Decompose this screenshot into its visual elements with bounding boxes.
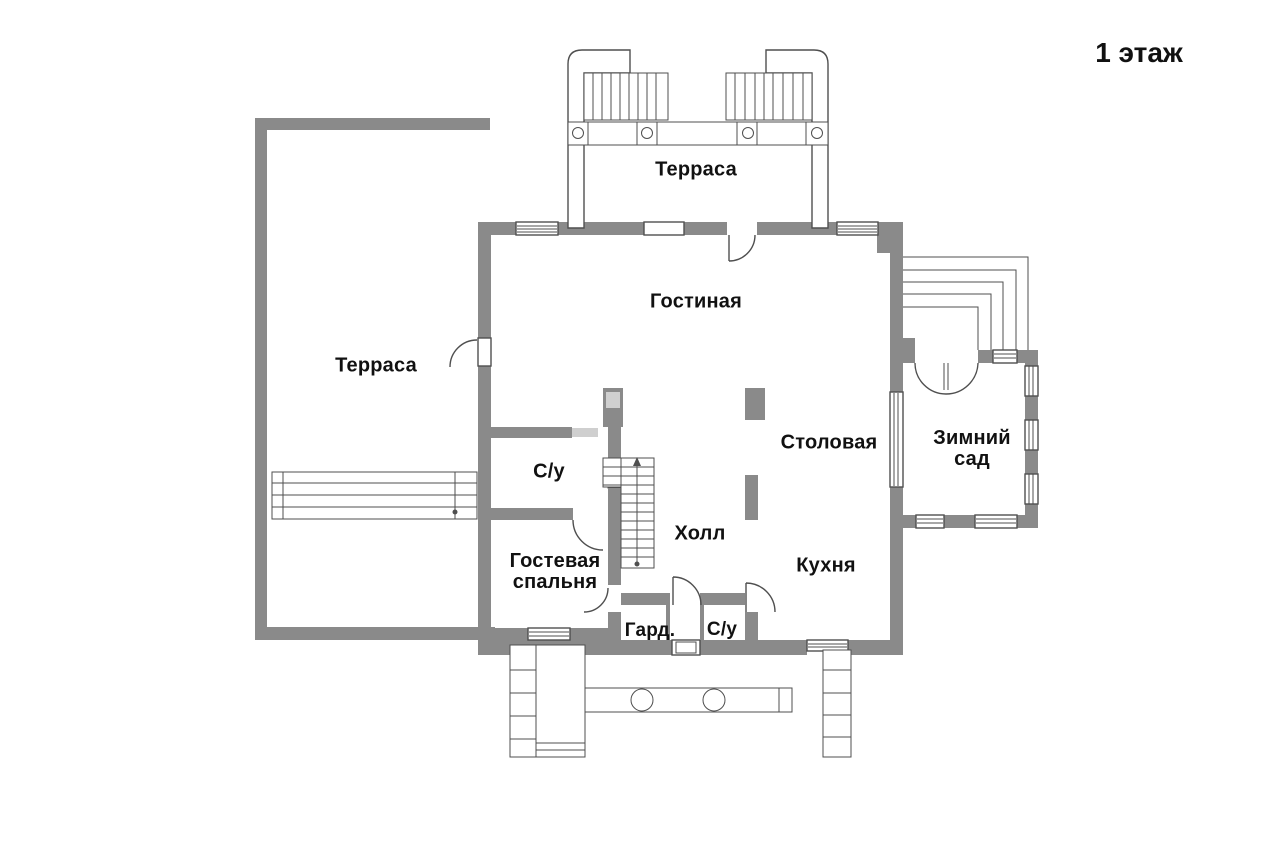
terrace-top-structure (568, 50, 828, 228)
terrace-top-stair-left (584, 73, 668, 120)
room-label-guest-bedroom: Гостевая спальня (510, 551, 601, 593)
floor-plan-page: Терраса Терраса Гостиная Столовая Зимний… (0, 0, 1280, 853)
room-label-terrace-top: Терраса (655, 160, 737, 181)
entrance-door (672, 640, 700, 655)
room-label-living-room: Гостиная (650, 292, 742, 313)
room-label-hall: Холл (674, 524, 725, 545)
room-label-bathroom-2: С/у (707, 620, 737, 640)
terrace-steps (272, 472, 477, 519)
terrace-top-stair-right (726, 73, 812, 120)
floor-title: 1 этаж (1095, 37, 1183, 69)
room-label-bathroom-1: С/у (533, 462, 565, 483)
exterior-stair-left (510, 645, 585, 757)
porch-canopy (570, 686, 792, 714)
winter-garden-exterior-steps (903, 257, 1028, 350)
exterior-stair-right (823, 650, 851, 757)
terrace-top-balustrade (568, 122, 828, 145)
room-label-wardrobe: Гард. (625, 621, 676, 641)
room-label-kitchen: Кухня (796, 556, 855, 577)
room-label-dining-room: Столовая (781, 433, 878, 454)
terrace-left-walls (255, 118, 495, 640)
room-label-terrace-left: Терраса (335, 356, 417, 377)
room-label-winter-garden: Зимний сад (933, 428, 1011, 470)
floor-plan-drawing (0, 0, 1280, 853)
winter-garden-double-door (915, 363, 978, 394)
